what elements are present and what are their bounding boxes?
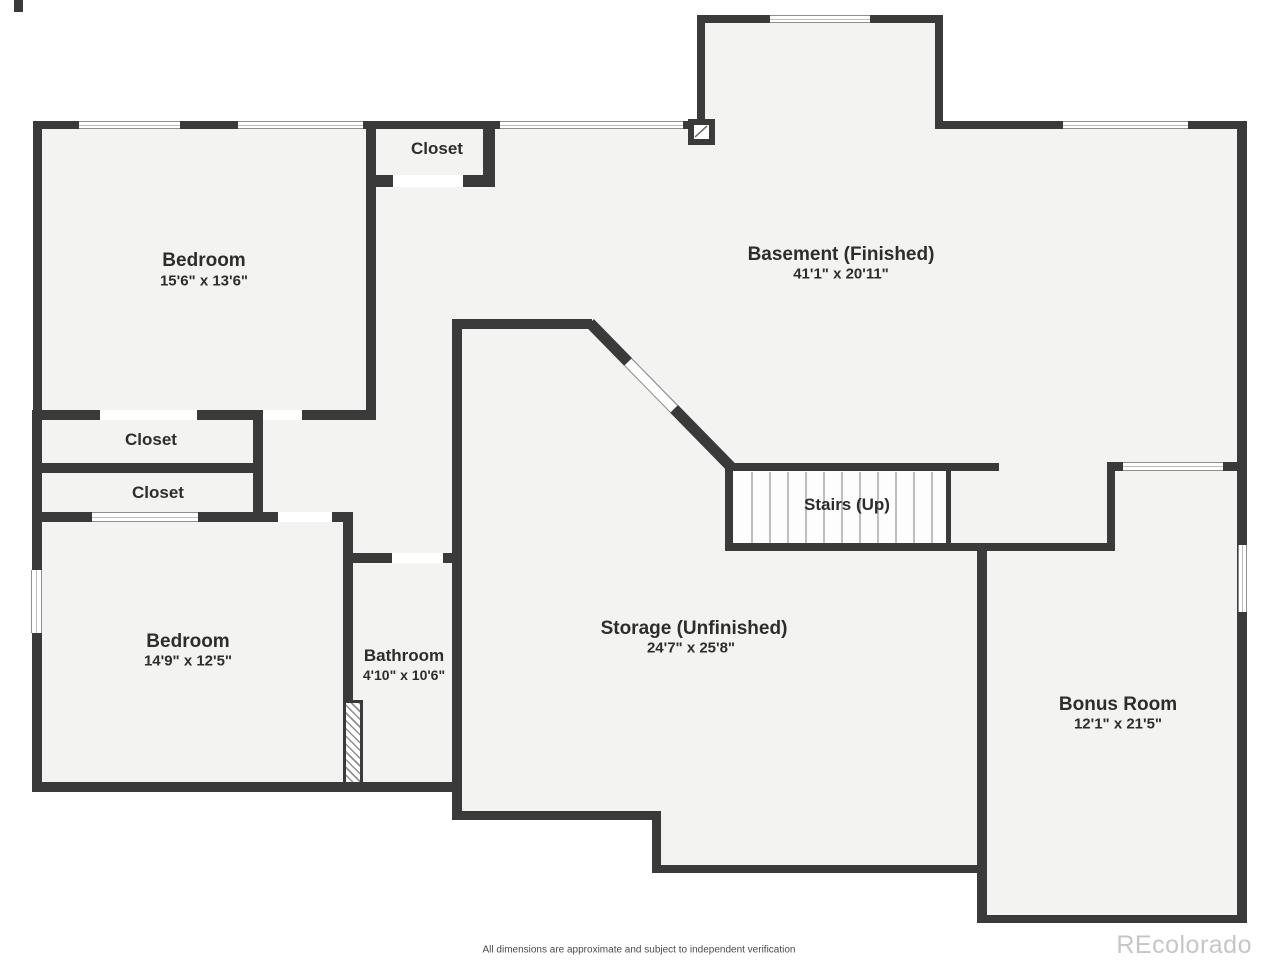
door-opening [392, 553, 443, 563]
room-dims-bonus: 12'1" x 21'5" [1074, 716, 1162, 733]
wall [32, 463, 263, 473]
floor-area [700, 20, 940, 130]
door-opening [263, 410, 302, 420]
wall [935, 15, 943, 129]
page-corner-artifact [14, 0, 23, 12]
fireplace-box [688, 119, 715, 145]
room-label-bedroom-lower: Bedroom [146, 631, 229, 653]
room-label-bedroom-upper: Bedroom [162, 250, 245, 272]
room-dims-bedroom-upper: 15'6" x 13'6" [160, 273, 248, 290]
window [770, 15, 870, 23]
wall [652, 865, 987, 873]
room-label-closet-low: Closet [132, 483, 184, 503]
wall [725, 543, 1113, 551]
fireplace-box-inner [694, 125, 709, 139]
wall [977, 915, 1247, 923]
room-dims-bedroom-lower: 14'9" x 12'5" [144, 653, 232, 670]
wall [1107, 462, 1115, 551]
wall [452, 319, 592, 329]
wall [697, 15, 705, 129]
window [500, 121, 683, 129]
door-opening [100, 410, 197, 420]
window [238, 121, 363, 129]
room-dims-basement: 41'1" x 20'11" [793, 266, 889, 283]
floor-plan: Bedroom 15'6" x 13'6" Closet Basement (F… [0, 0, 1280, 960]
room-label-basement: Basement (Finished) [748, 244, 935, 266]
wall [253, 410, 263, 522]
wall [1237, 121, 1247, 923]
room-label-bonus: Bonus Room [1059, 694, 1177, 716]
window [1063, 121, 1188, 129]
window [79, 121, 180, 129]
floor-area [656, 548, 983, 870]
room-dims-bathroom: 4'10" x 10'6" [363, 667, 445, 683]
wall [343, 512, 353, 703]
wall [452, 319, 462, 820]
wall [33, 121, 42, 420]
window [1123, 462, 1223, 471]
window [92, 512, 198, 522]
wall [946, 471, 951, 543]
dimensions-disclaimer: All dimensions are approximate and subje… [483, 945, 796, 956]
wall [725, 463, 999, 471]
room-label-closet-top: Closet [411, 139, 463, 159]
door-opening [393, 175, 463, 187]
window [1238, 545, 1247, 612]
room-label-storage: Storage (Unfinished) [601, 618, 788, 640]
wall [33, 410, 376, 420]
hatched-wall-segment [343, 700, 363, 785]
door-opening [278, 512, 332, 522]
wall [977, 543, 987, 923]
window [31, 570, 42, 633]
room-label-closet-mid: Closet [125, 430, 177, 450]
room-dims-storage: 24'7" x 25'8" [647, 640, 735, 657]
wall [652, 811, 661, 873]
wall [452, 811, 661, 820]
room-label-bathroom: Bathroom [364, 646, 444, 666]
wall [32, 782, 462, 792]
wall [366, 121, 376, 420]
recolorado-watermark: REcolorado [1116, 931, 1252, 960]
room-label-stairs: Stairs (Up) [804, 495, 890, 515]
wall [725, 463, 733, 551]
